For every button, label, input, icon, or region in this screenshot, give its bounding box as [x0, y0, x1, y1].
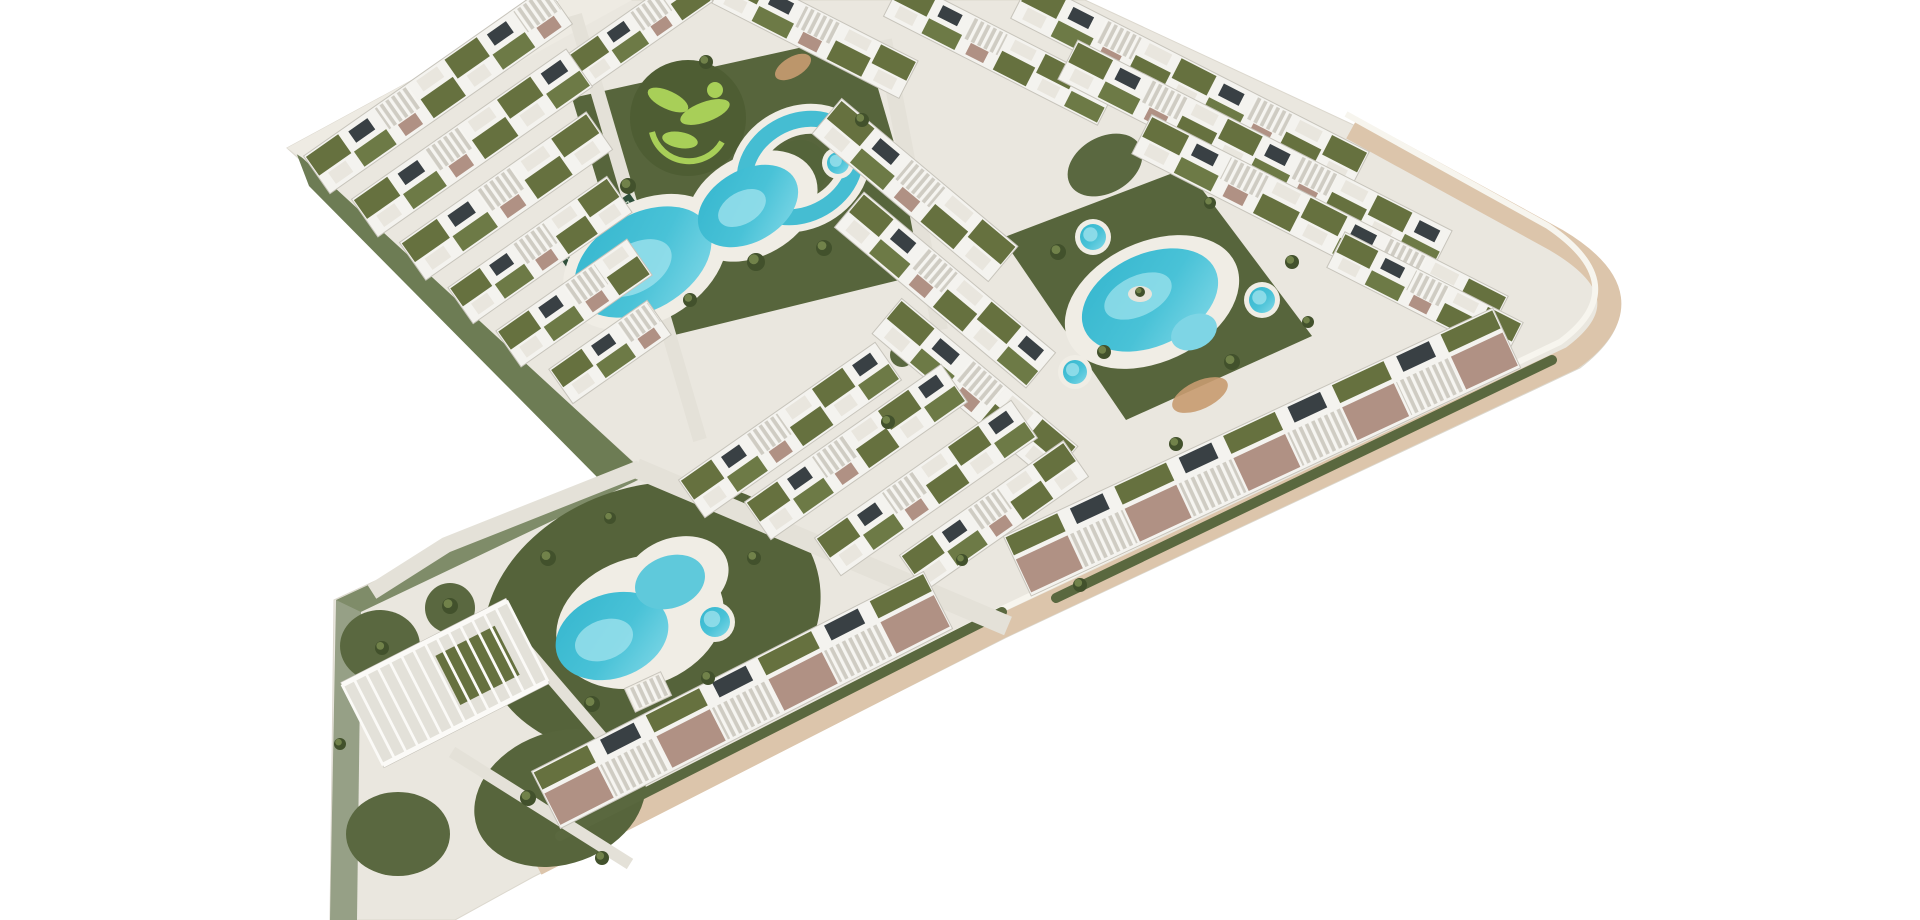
palm — [442, 598, 458, 614]
palm — [540, 550, 556, 566]
palm — [584, 696, 600, 712]
palm — [956, 554, 968, 566]
palm — [334, 738, 346, 750]
palm-canopy-highlight — [605, 513, 612, 520]
palm-canopy-highlight — [1136, 288, 1142, 294]
palm-canopy-highlight — [622, 179, 631, 188]
spa-pool-b — [1244, 282, 1280, 318]
palm-canopy-highlight — [376, 642, 384, 650]
palm — [683, 293, 697, 307]
palm-canopy-highlight — [542, 551, 551, 560]
spa-highlight — [1083, 227, 1097, 241]
palm-canopy-highlight — [1303, 317, 1310, 324]
palm-canopy-highlight — [1205, 198, 1212, 205]
palm — [881, 415, 895, 429]
spa-pool-c — [1058, 355, 1092, 389]
palm-canopy-highlight — [702, 672, 710, 680]
palm-canopy-highlight — [818, 241, 827, 250]
palm-canopy-highlight — [1170, 438, 1178, 446]
palm-canopy-highlight — [882, 416, 890, 424]
minigolf-green-d — [707, 82, 723, 98]
palm-canopy-highlight — [957, 555, 964, 562]
palm-canopy-highlight — [856, 114, 864, 122]
palm — [595, 851, 609, 865]
palm — [747, 551, 761, 565]
palm-canopy-highlight — [749, 254, 759, 264]
palm-canopy-highlight — [1098, 346, 1106, 354]
palm — [1169, 437, 1183, 451]
render-viewport — [0, 0, 1920, 920]
palm — [701, 671, 715, 685]
palm — [1224, 354, 1240, 370]
palm-canopy-highlight — [748, 552, 756, 560]
palm-canopy-highlight — [700, 56, 708, 64]
palm — [855, 113, 869, 127]
palm — [375, 641, 389, 655]
spa-highlight — [1066, 363, 1079, 376]
palm — [1204, 197, 1216, 209]
palm-canopy-highlight — [1286, 256, 1294, 264]
garden-wing-southwest — [346, 792, 450, 876]
palm-canopy-highlight — [1226, 355, 1235, 364]
palm — [747, 253, 765, 271]
palm — [1050, 244, 1066, 260]
spa-pool-e — [695, 602, 735, 642]
palm — [1073, 578, 1087, 592]
palm — [1302, 316, 1314, 328]
palm — [1097, 345, 1111, 359]
palm-canopy-highlight — [596, 852, 604, 860]
palm-island — [1135, 287, 1145, 297]
palm-canopy-highlight — [444, 599, 453, 608]
palm — [520, 790, 536, 806]
palm-canopy-highlight — [522, 791, 531, 800]
palm — [699, 55, 713, 69]
spa-pool-a — [1075, 219, 1111, 255]
development-aerial-render — [0, 0, 1920, 920]
palm-canopy-highlight — [335, 739, 342, 746]
palm-canopy-highlight — [586, 697, 595, 706]
palm-canopy-highlight — [1052, 245, 1061, 254]
palm — [604, 512, 616, 524]
spa-highlight — [1252, 290, 1266, 304]
palm — [1285, 255, 1299, 269]
palm — [816, 240, 832, 256]
palm — [620, 178, 636, 194]
palm-canopy-highlight — [684, 294, 692, 302]
palm-canopy-highlight — [1074, 579, 1082, 587]
spa-highlight — [704, 611, 721, 628]
